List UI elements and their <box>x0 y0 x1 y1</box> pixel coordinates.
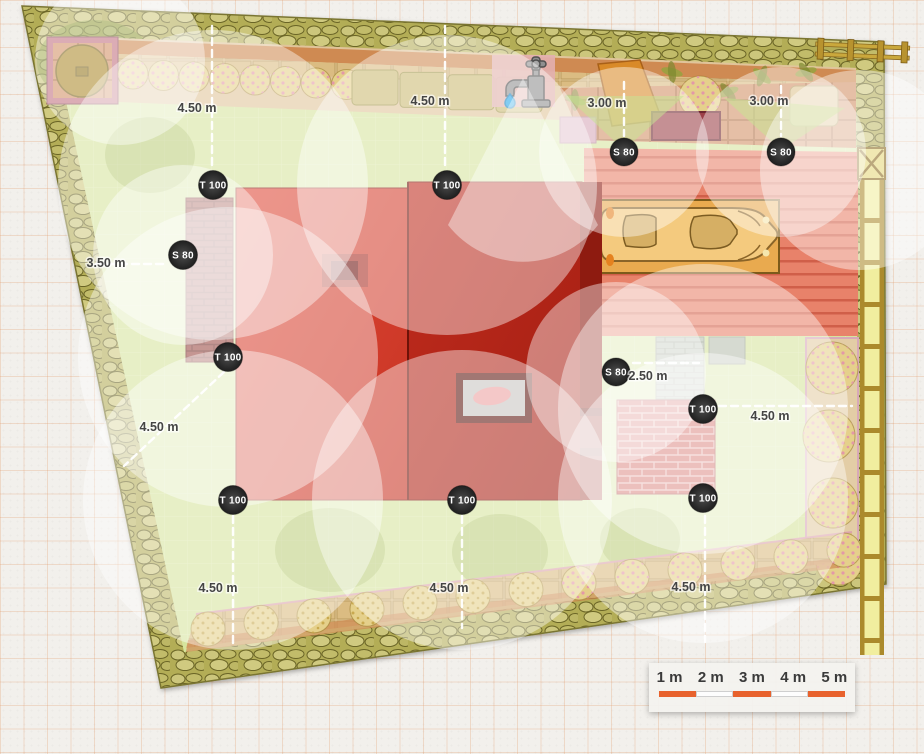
scale-label: 3 m <box>739 669 765 686</box>
sprinkler-coverage <box>35 0 924 650</box>
sprinkler-marker-s80[interactable]: S 80 <box>602 358 630 386</box>
car-light <box>763 250 770 257</box>
sprinkler-marker-t100[interactable]: T 100 <box>689 484 718 513</box>
sprinkler-marker-s80[interactable]: S 80 <box>169 241 198 270</box>
sprinkler-label: T 100 <box>689 405 716 416</box>
measurement-label: 4.50 m <box>751 409 790 423</box>
sprinkler-label: T 100 <box>689 494 716 505</box>
measurement-label: 4.50 m <box>411 94 450 108</box>
measurement-label: 3.50 m <box>87 256 126 270</box>
sprinkler-label: T 100 <box>448 496 475 507</box>
planner-canvas: S 80 S 80 T 100 T 100 S 80 T 100 S 80 T … <box>0 0 924 754</box>
sprinkler-label: S 80 <box>770 148 792 159</box>
sprinkler-label: S 80 <box>605 368 627 379</box>
sprinkler-marker-t100[interactable]: T 100 <box>214 343 243 372</box>
sprinkler-marker-t100[interactable]: T 100 <box>219 486 248 515</box>
sprinkler-marker-s80[interactable]: S 80 <box>610 138 638 166</box>
sprinkler-label: T 100 <box>214 353 241 364</box>
scale-label: 5 m <box>821 669 847 686</box>
plan-svg: S 80 S 80 T 100 T 100 S 80 T 100 S 80 T … <box>0 0 924 754</box>
sprinkler-label: S 80 <box>613 148 635 159</box>
sprinkler-label: T 100 <box>433 181 460 192</box>
sprinkler-marker-s80[interactable]: S 80 <box>767 138 795 166</box>
scale-bar-track <box>659 691 845 697</box>
scale-label: 4 m <box>780 669 806 686</box>
scale-label: 2 m <box>698 669 724 686</box>
sprinkler-label: T 100 <box>219 496 246 507</box>
measurement-label: 4.50 m <box>672 580 711 594</box>
sprinkler-label: T 100 <box>199 181 226 192</box>
measurement-label: 4.50 m <box>140 420 179 434</box>
sprinkler-marker-t100[interactable]: T 100 <box>433 171 462 200</box>
sprinkler-label: S 80 <box>172 251 194 262</box>
scale-bar-labels: 1 m 2 m 3 m 4 m 5 m <box>649 663 855 686</box>
car-windshield <box>690 215 737 248</box>
measurement-label: 3.00 m <box>588 96 627 110</box>
measurement-label: 4.50 m <box>178 101 217 115</box>
measurement-label: 4.50 m <box>199 581 238 595</box>
measurement-label: 3.00 m <box>750 94 789 108</box>
scale-label: 1 m <box>657 669 683 686</box>
car-light <box>606 254 614 266</box>
sprinkler-marker-t100[interactable]: T 100 <box>199 171 228 200</box>
sprinkler-marker-t100[interactable]: T 100 <box>689 395 718 424</box>
sprinkler-marker-t100[interactable]: T 100 <box>448 486 477 515</box>
measurement-label: 2.50 m <box>629 369 668 383</box>
measurement-label: 4.50 m <box>430 581 469 595</box>
scale-bar: 1 m 2 m 3 m 4 m 5 m <box>649 663 855 712</box>
